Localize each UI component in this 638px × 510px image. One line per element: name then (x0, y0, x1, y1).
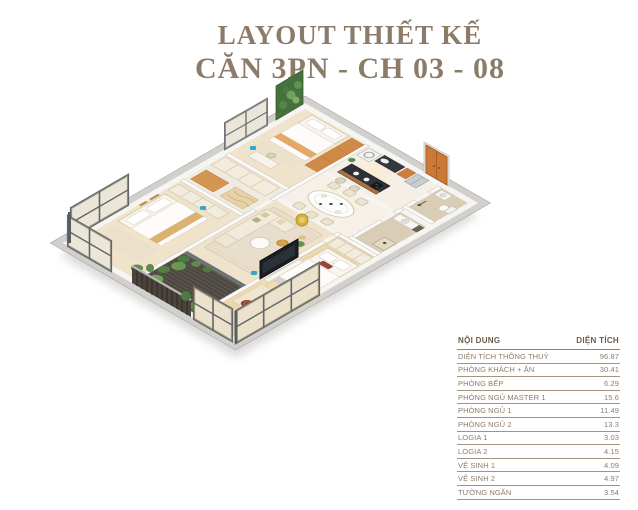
area-value: 4.09 (604, 461, 619, 470)
table-row: DIỆN TÍCH THÔNG THUỶ 96.87 (457, 350, 620, 364)
area-value: 4.97 (604, 474, 619, 483)
table-header: NỘI DUNG DIỆN TÍCH (457, 336, 620, 350)
room-label: VỆ SINH 1 (458, 461, 495, 470)
railing-plant (146, 264, 154, 272)
door-handle (433, 165, 435, 167)
room-label: TƯỜNG NGĂN (458, 488, 511, 497)
room-label: LOGIA 1 (458, 433, 487, 442)
room-label: PHÒNG BẾP (458, 379, 504, 388)
area-value: 4.15 (604, 447, 619, 456)
table-row: LOGIA 1 3.03 (457, 432, 620, 446)
area-value: 13.3 (604, 420, 619, 429)
room-label: PHÒNG NGỦ 2 (458, 420, 512, 429)
tag-teal (250, 146, 256, 150)
room-label: LOGIA 2 (458, 447, 487, 456)
tag-teal (200, 206, 206, 210)
table-row: PHÒNG BẾP 6.29 (457, 377, 620, 391)
header-content: NỘI DUNG (458, 336, 500, 345)
table-row: PHÒNG NGỦ 2 13.3 (457, 418, 620, 432)
room-label: DIỆN TÍCH THÔNG THUỶ (458, 352, 549, 361)
table-row: PHÒNG NGỦ 1 11.49 (457, 404, 620, 418)
area-table: NỘI DUNG DIỆN TÍCH DIỆN TÍCH THÔNG THUỶ … (457, 336, 620, 500)
area-value: 3.54 (604, 488, 619, 497)
tag-teal (251, 271, 257, 275)
room-label: PHÒNG NGỦ 1 (458, 406, 512, 415)
table-row: PHÒNG KHÁCH + ĂN 30.41 (457, 364, 620, 378)
table-row: LOGIA 2 4.15 (457, 445, 620, 459)
area-value: 15.6 (604, 393, 619, 402)
railing-plant (181, 291, 191, 301)
room-label: PHÒNG KHÁCH + ĂN (458, 365, 534, 374)
table-row: VỆ SINH 2 4.97 (457, 472, 620, 486)
poster-page: LAYOUT THIẾT KẾ CĂN 3PN - CH 03 - 08 (0, 0, 638, 510)
table-row: TƯỜNG NGĂN 3.54 (457, 486, 620, 500)
header-area: DIỆN TÍCH (576, 336, 619, 345)
room-label: PHÒNG NGỦ MASTER 1 (458, 393, 546, 402)
room-label: VỆ SINH 2 (458, 474, 495, 483)
gold-badge (296, 214, 308, 226)
area-value: 6.29 (604, 379, 619, 388)
table-row: VỆ SINH 1 4.09 (457, 459, 620, 473)
door-handle (438, 167, 440, 169)
area-value: 3.03 (604, 433, 619, 442)
area-value: 30.41 (600, 365, 619, 374)
table-row: PHÒNG NGỦ MASTER 1 15.6 (457, 391, 620, 405)
area-value: 11.49 (600, 406, 619, 415)
area-value: 96.87 (600, 352, 619, 361)
